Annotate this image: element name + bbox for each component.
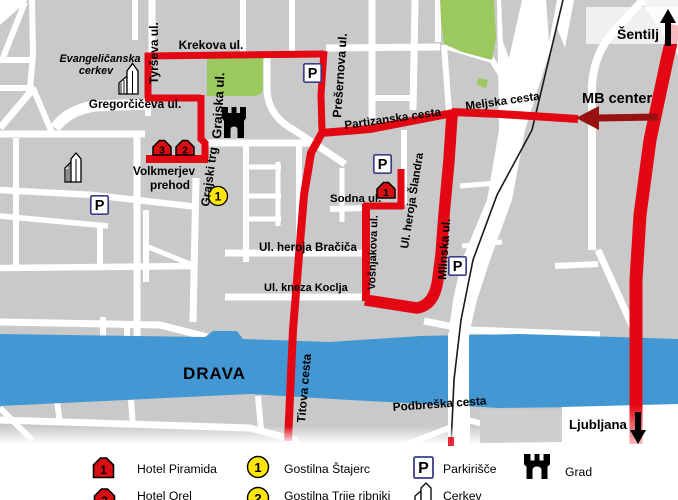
svg-text:Sodna ul.: Sodna ul. bbox=[330, 193, 381, 205]
svg-text:P: P bbox=[308, 66, 318, 82]
svg-text:cerkev: cerkev bbox=[79, 65, 114, 77]
svg-text:Volkmerjev: Volkmerjev bbox=[133, 164, 196, 178]
svg-text:1: 1 bbox=[100, 463, 107, 477]
svg-text:Hotel Orel: Hotel Orel bbox=[137, 489, 192, 500]
svg-text:2: 2 bbox=[254, 491, 261, 500]
svg-text:Tyrševa ul.: Tyrševa ul. bbox=[147, 22, 161, 84]
svg-text:prehod: prehod bbox=[150, 178, 190, 192]
svg-text:2: 2 bbox=[182, 145, 188, 157]
svg-text:Gostilna Trije ribniki: Gostilna Trije ribniki bbox=[284, 489, 390, 500]
svg-text:1: 1 bbox=[254, 460, 261, 475]
svg-text:3: 3 bbox=[159, 145, 165, 157]
svg-text:P: P bbox=[95, 198, 105, 214]
svg-text:P: P bbox=[453, 259, 463, 275]
svg-text:1: 1 bbox=[215, 190, 222, 204]
svg-text:Grad: Grad bbox=[565, 465, 592, 479]
svg-text:Krekova ul.: Krekova ul. bbox=[179, 38, 244, 52]
svg-text:MB center: MB center bbox=[582, 91, 652, 107]
svg-text:Hotel Piramida: Hotel Piramida bbox=[137, 462, 217, 476]
svg-text:P: P bbox=[378, 157, 388, 173]
svg-text:Ul. heroja Bračiča: Ul. heroja Bračiča bbox=[259, 241, 357, 254]
svg-text:Ljubljana: Ljubljana bbox=[569, 417, 628, 432]
svg-text:Ul. kneza Koclja: Ul. kneza Koclja bbox=[264, 282, 349, 294]
svg-text:DRAVA: DRAVA bbox=[183, 364, 246, 383]
svg-text:1: 1 bbox=[383, 187, 389, 199]
svg-text:Cerkev: Cerkev bbox=[443, 489, 483, 500]
svg-text:Parkirišče: Parkirišče bbox=[443, 462, 497, 476]
svg-text:Gostilna Štajerc: Gostilna Štajerc bbox=[284, 461, 370, 476]
svg-text:2: 2 bbox=[101, 494, 108, 500]
svg-text:Šentilj: Šentilj bbox=[617, 25, 659, 42]
svg-text:Gregorčičeva ul.: Gregorčičeva ul. bbox=[89, 97, 181, 111]
svg-text:Evangeličanska: Evangeličanska bbox=[59, 53, 140, 65]
svg-text:P: P bbox=[418, 460, 429, 477]
